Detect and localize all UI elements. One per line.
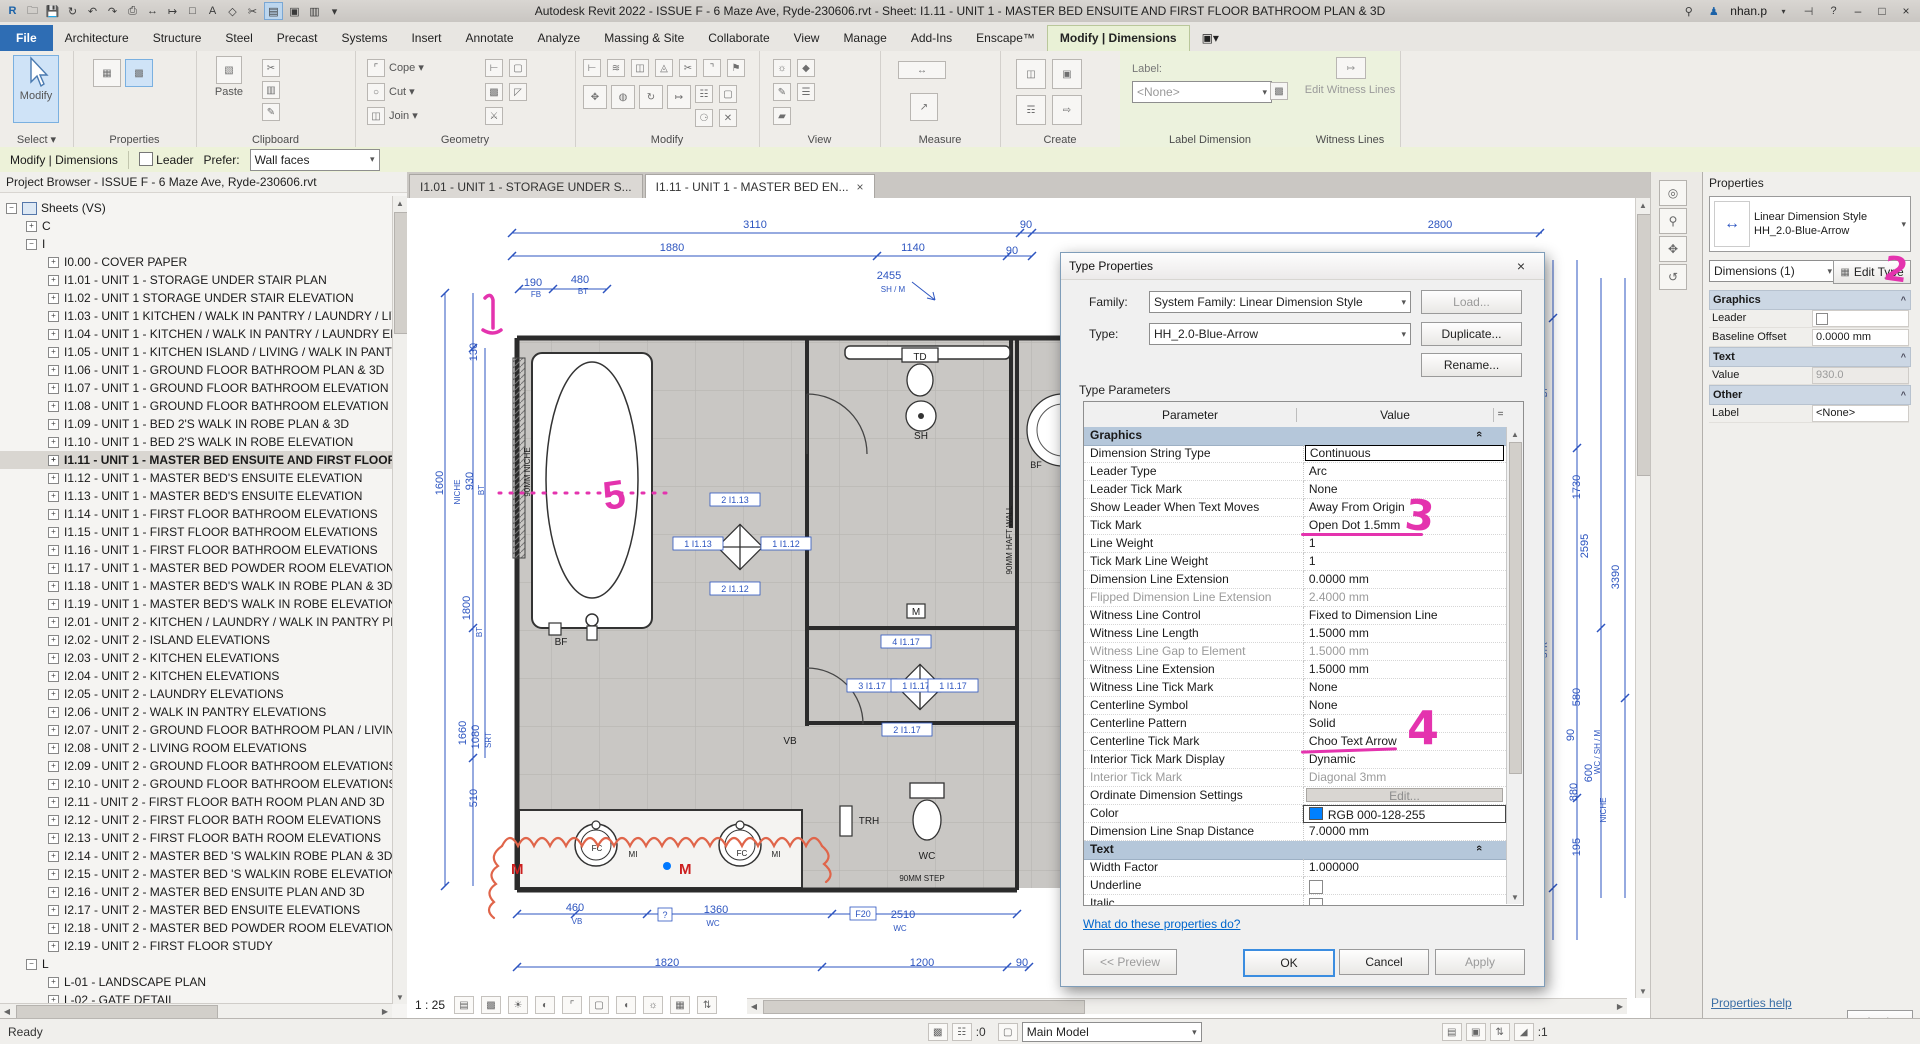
ribbon-tab-precast[interactable]: Precast [265, 26, 330, 51]
elevation-tag: 1 I1.12 [772, 539, 800, 549]
tree-item[interactable]: +I1.17 - UNIT 1 - MASTER BED POWDER ROOM… [0, 559, 408, 577]
ribbon-group-create: ◫ ▣ ☶ ⇨ Create [1000, 51, 1121, 147]
elevation-tag: F20 [855, 909, 871, 919]
ribbon-tab-view[interactable]: View [782, 26, 832, 51]
tree-item[interactable]: +I2.02 - UNIT 2 - ISLAND ELEVATIONS [0, 631, 408, 649]
parameter-row[interactable]: Witness Line ControlFixed to Dimension L… [1084, 607, 1506, 625]
status-text: Ready [8, 1025, 43, 1039]
label-dimension-group-label[interactable]: Label Dimension [1120, 134, 1300, 146]
ribbon-group-properties: ▦ ▩ Properties [73, 51, 197, 147]
ok-button[interactable]: OK [1243, 949, 1335, 977]
plan-label: WC [919, 851, 936, 862]
plan-label: M [912, 607, 920, 618]
dialog-title: Type Properties [1069, 259, 1153, 273]
tree-item[interactable]: +I2.10 - UNIT 2 - GROUND FLOOR BATHROOM … [0, 775, 408, 793]
edit-witness-lines-button[interactable]: Edit Witness Lines [1300, 83, 1400, 97]
options-bar: Modify | Dimensions Leader Prefer: Wall … [0, 147, 1920, 173]
press-drag-icon[interactable]: ⇅ [1490, 1023, 1510, 1041]
dimension-text: 130 [468, 343, 480, 361]
override-graphics-icon[interactable]: ✎ [773, 83, 791, 101]
plan-label: FC [737, 849, 748, 858]
tree-item[interactable]: +I0.00 - COVER PAPER [0, 253, 408, 271]
tree-item[interactable]: +I2.03 - UNIT 2 - KITCHEN ELEVATIONS [0, 649, 408, 667]
minimize-button[interactable]: – [1850, 4, 1866, 18]
geometry-group-label[interactable]: Geometry [355, 134, 575, 146]
modify-group-label[interactable]: Modify [575, 134, 759, 146]
dialog-title-bar[interactable]: Type Properties × [1061, 253, 1544, 280]
type-selector-line2: HH_2.0-Blue-Arrow [1754, 224, 1867, 238]
ribbon-tab-insert[interactable]: Insert [399, 26, 453, 51]
dimension-text: 1080 [470, 725, 482, 749]
family-select[interactable]: System Family: Linear Dimension Style▾ [1149, 291, 1411, 313]
clipboard-group-label[interactable]: Clipboard [196, 134, 355, 146]
tree-item[interactable]: +I2.01 - UNIT 2 - KITCHEN / LAUNDRY / WA… [0, 613, 408, 631]
copy-modify-icon[interactable]: ◍ [611, 85, 635, 109]
type-properties-dialog[interactable]: Type Properties × Family: System Family:… [1060, 252, 1545, 987]
restore-button[interactable]: □ [1874, 4, 1890, 18]
tree-item[interactable]: +I1.15 - UNIT 1 - FIRST FLOOR BATHROOM E… [0, 523, 408, 541]
create-group-icon[interactable]: ◫ [1016, 59, 1046, 89]
tree-item[interactable]: +I2.15 - UNIT 2 - MASTER BED 'S WALKIN R… [0, 865, 408, 883]
tree-item[interactable]: +I2.13 - UNIT 2 - FIRST FLOOR BATH ROOM … [0, 829, 408, 847]
ribbon-tab-structure[interactable]: Structure [141, 26, 214, 51]
pin-icon[interactable]: ⚑ [727, 59, 745, 77]
pan-icon[interactable]: ✥ [1659, 236, 1687, 262]
chevron-down-icon[interactable]: ▾ [1775, 3, 1792, 19]
3d-view-icon[interactable]: ◇ [224, 3, 241, 19]
view-group-label[interactable]: View [759, 134, 880, 146]
reveal-hidden-icon[interactable]: ☼ [643, 996, 663, 1014]
shadows-icon[interactable]: ◐ [535, 996, 555, 1014]
tree-item[interactable]: +I1.10 - UNIT 1 - BED 2'S WALK IN ROBE E… [0, 433, 408, 451]
dimension-text: 2595 [1579, 534, 1591, 558]
ribbon-tab-architecture[interactable]: Architecture [53, 26, 141, 51]
measure-line-icon[interactable]: ↔ [898, 61, 946, 79]
ribbon-tab-analyze[interactable]: Analyze [526, 26, 593, 51]
ribbon-display-toggle[interactable]: ▣▾ [1190, 26, 1231, 51]
edit-type-button[interactable]: ▦ Edit Type [1833, 260, 1911, 284]
parameter-row[interactable]: Interior Tick Mark DisplayDynamic [1084, 751, 1506, 769]
paint-icon[interactable]: ◸ [509, 83, 527, 101]
unpin-icon[interactable]: ⚆ [695, 109, 713, 127]
modify-tool-button[interactable]: Modify [13, 55, 59, 123]
label-dimension-select[interactable]: <None>▾ [1132, 81, 1272, 103]
type-select[interactable]: HH_2.0-Blue-Arrow▾ [1149, 323, 1411, 345]
revit-window: R 🗀 💾 ↻ ↶ ↷ ⎙ ↔ ↦ □ A ◇ ✂ ▤ ▣ ▥ ▾ Autode… [0, 0, 1920, 1044]
dimension-text: 195 [1571, 838, 1583, 856]
dialog-close-icon[interactable]: × [1506, 258, 1536, 274]
prefer-select[interactable]: Wall faces▾ [250, 149, 380, 171]
value-column-header[interactable]: Value [1297, 408, 1494, 422]
properties-group-label[interactable]: Properties [73, 134, 196, 146]
worksharing-display-icon[interactable]: ▦ [670, 996, 690, 1014]
parameter-row[interactable]: ColorRGB 000-128-255 [1084, 805, 1506, 823]
tree-item[interactable]: +I1.03 - UNIT 1 KITCHEN / WALK IN PANTRY… [0, 307, 408, 325]
beam-icon[interactable]: ▢ [509, 59, 527, 77]
dimension-text: NICHE [1599, 798, 1608, 823]
parameter-row[interactable]: Line Weight1 [1084, 535, 1506, 553]
cope-icon[interactable]: ⌜ [367, 59, 385, 77]
sun-path-icon[interactable]: ☀ [508, 996, 528, 1014]
dimension-text: 90 [1006, 245, 1018, 257]
ribbon-tab-file[interactable]: File [0, 25, 53, 51]
dimension-text: 580 [1571, 688, 1583, 706]
text-icon[interactable]: A [204, 3, 221, 19]
open-icon[interactable]: 🗀 [24, 3, 41, 19]
zoom-icon[interactable]: ⚲ [1659, 208, 1687, 234]
browser-horizontal-scrollbar[interactable]: ◀ ▶ [0, 1003, 392, 1018]
ribbon-tab-annotate[interactable]: Annotate [453, 26, 525, 51]
tree-item-selected[interactable]: +I1.11 - UNIT 1 - MASTER BED ENSUITE AND… [0, 451, 408, 469]
modify-cursor-icon [23, 56, 49, 90]
tree-item[interactable]: +I2.11 - UNIT 2 - FIRST FLOOR BATH ROOM … [0, 793, 408, 811]
tree-item[interactable]: +I2.12 - UNIT 2 - FIRST FLOOR BATH ROOM … [0, 811, 408, 829]
tree-item[interactable]: +I2.16 - UNIT 2 - MASTER BED ENSUITE PLA… [0, 883, 408, 901]
array-icon[interactable]: ☷ [695, 85, 713, 103]
view-cube-icon[interactable]: ▰ [773, 107, 791, 125]
parameter-row[interactable]: Witness Line Length1.5000 mm [1084, 625, 1506, 643]
tree-node-c[interactable]: +C [0, 217, 408, 235]
parameter-section-row[interactable]: Text« [1084, 841, 1506, 860]
hide-icon[interactable]: ◆ [797, 59, 815, 77]
dimension-text: 1140 [901, 242, 925, 254]
copy-icon[interactable]: ▥ [262, 81, 280, 99]
parameter-row[interactable]: Interior Tick MarkDiagonal 3mm [1084, 769, 1506, 787]
edit-label-icon[interactable]: ▩ [1270, 82, 1288, 100]
orbit-icon[interactable]: ↺ [1659, 264, 1687, 290]
dimension-text: 1660 [457, 721, 469, 745]
extend-icon[interactable]: ↦ [667, 85, 691, 109]
tree-item[interactable]: +I1.09 - UNIT 1 - BED 2'S WALK IN ROBE P… [0, 415, 408, 433]
mirror-icon[interactable]: ◫ [631, 59, 649, 77]
type-parameters-label: Type Parameters [1079, 383, 1170, 397]
tree-item[interactable]: +I1.18 - UNIT 1 - MASTER BED'S WALK IN R… [0, 577, 408, 595]
parameter-row[interactable]: Dimension String TypeContinuous [1084, 445, 1506, 463]
search-icon[interactable]: ⚲ [1680, 3, 1697, 19]
ribbon-group-label-dimension: Label: <None>▾ ▩ Label Dimension [1120, 51, 1301, 147]
active-workset-icon[interactable]: ☷ [952, 1023, 972, 1041]
cancel-button[interactable]: Cancel [1339, 949, 1429, 975]
parameter-row[interactable]: Italic [1084, 895, 1506, 905]
properties-section-row[interactable]: Text^ [1709, 347, 1911, 367]
view-tab-close-icon[interactable]: × [857, 180, 864, 194]
parameter-row[interactable]: Dimension Line Snap Distance7.0000 mm [1084, 823, 1506, 841]
create-group-label[interactable]: Create [1000, 134, 1120, 146]
parameter-row[interactable]: Centerline Tick MarkChoo Text Arrow [1084, 733, 1506, 751]
show-crop-icon[interactable]: ▢ [589, 996, 609, 1014]
parameter-row[interactable]: Tick MarkOpen Dot 1.5mm [1084, 517, 1506, 535]
elevation-tag: 1 I1.13 [684, 539, 712, 549]
status-bar: Ready ▩ ☷ :0 ▢ Main Model▾ ▤ ▣ ⇅ ◢ :1 [0, 1018, 1920, 1044]
filter-icon[interactable]: ◢ [1514, 1023, 1534, 1041]
revit-logo-icon[interactable]: R [4, 3, 21, 19]
view-control-bar: 1 : 25 ▤ ▩ ☀ ◐ ⌜ ▢ ◖ ☼ ▦ ⇅ [415, 996, 721, 1014]
join-geometry-icon[interactable]: ◫ [367, 107, 385, 125]
properties-row[interactable]: Baseline Offset0.0000 mm [1709, 328, 1909, 347]
checkbox[interactable] [1309, 880, 1323, 894]
undo-icon[interactable]: ↶ [84, 3, 101, 19]
thin-lines-icon[interactable]: ▤ [264, 2, 283, 20]
view-tab-bar: I1.01 - UNIT 1 - STORAGE UNDER S...I1.11… [407, 172, 1650, 198]
type-selector-line1: Linear Dimension Style [1754, 210, 1867, 224]
project-browser-title[interactable]: Project Browser - ISSUE F - 6 Maze Ave, … [0, 172, 407, 193]
lightbulb-icon[interactable]: ☼ [773, 59, 791, 77]
tree-item[interactable]: +I2.19 - UNIT 2 - FIRST FLOOR STUDY [0, 937, 408, 955]
demolish-icon[interactable]: ⚔ [485, 107, 503, 125]
ribbon-group-clipboard: ▧ Paste ✂ ▥ ✎ Clipboard [196, 51, 356, 147]
tree-item[interactable]: +I1.12 - UNIT 1 - MASTER BED'S ENSUITE E… [0, 469, 408, 487]
tree-item[interactable]: +I1.16 - UNIT 1 - FIRST FLOOR BATHROOM E… [0, 541, 408, 559]
workset-counter: :0 [976, 1025, 986, 1039]
save-icon[interactable]: 💾 [44, 3, 61, 19]
prefer-label: Prefer: [204, 153, 240, 167]
parameter-row[interactable]: Flipped Dimension Line Extension2.4000 m… [1084, 589, 1506, 607]
parameter-column-header[interactable]: Parameter [1084, 408, 1297, 422]
tree-item[interactable]: +I2.09 - UNIT 2 - GROUND FLOOR BATHROOM … [0, 757, 408, 775]
dimension-text: FB [531, 290, 541, 299]
dimension-text: 90 [1020, 219, 1032, 231]
parameter-row[interactable]: Ordinate Dimension SettingsEdit... [1084, 787, 1506, 805]
leader-checkbox[interactable] [139, 152, 153, 166]
visual-style-icon[interactable]: ▩ [481, 996, 501, 1014]
dimension-text: 1800 [461, 596, 473, 620]
move-icon[interactable]: ✥ [583, 85, 607, 109]
dimension-text: 3390 [1610, 565, 1622, 589]
view-tab-active[interactable]: I1.11 - UNIT 1 - MASTER BED EN...× [645, 174, 875, 198]
scale-icon[interactable]: ▢ [719, 85, 737, 103]
tree-item[interactable]: +I2.05 - UNIT 2 - LAUNDRY ELEVATIONS [0, 685, 408, 703]
elevation-tag: 3 I1.17 [858, 681, 886, 691]
parameter-section-row[interactable]: Graphics« [1084, 427, 1506, 446]
mirror-draw-icon[interactable]: ◬ [655, 59, 673, 77]
dimension-text: 2800 [1428, 219, 1452, 231]
tree-item[interactable]: +L-01 - LANDSCAPE PLAN [0, 973, 408, 991]
rotate-icon[interactable]: ↻ [639, 85, 663, 109]
properties-section-row[interactable]: Graphics^ [1709, 290, 1911, 310]
dialog-apply-button[interactable]: Apply [1435, 949, 1525, 975]
dimension-text: 930 [464, 472, 476, 490]
properties-row[interactable]: Leader [1709, 309, 1909, 328]
tree-item[interactable]: +I1.05 - UNIT 1 - KITCHEN ISLAND / LIVIN… [0, 343, 408, 361]
parameter-row[interactable]: Witness Line Extension1.5000 mm [1084, 661, 1506, 679]
plan-label: BF [555, 637, 568, 648]
linework-icon[interactable]: ☰ [797, 83, 815, 101]
parameter-row[interactable]: Width Factor1.000000 [1084, 859, 1506, 877]
properties-section-row[interactable]: Other^ [1709, 385, 1911, 405]
tree-item[interactable]: +I1.02 - UNIT 1 STORAGE UNDER STAIR ELEV… [0, 289, 408, 307]
properties-row[interactable]: Label<None> [1709, 404, 1909, 423]
tree-item[interactable]: +I2.07 - UNIT 2 - GROUND FLOOR BATHROOM … [0, 721, 408, 739]
temporary-hide-isolate-icon[interactable]: ◖ [616, 996, 636, 1014]
tree-node-l[interactable]: −L [0, 955, 408, 973]
ribbon-tab-enscape-[interactable]: Enscape™ [964, 26, 1047, 51]
ribbon-tab-massing-site[interactable]: Massing & Site [592, 26, 696, 51]
create-assembly-icon[interactable]: ▣ [1052, 59, 1082, 89]
ribbon-tab-collaborate[interactable]: Collaborate [696, 26, 781, 51]
switch-windows-icon[interactable]: ▥ [306, 3, 323, 19]
customize-qat-icon[interactable]: ▾ [326, 3, 343, 19]
properties-header[interactable]: Properties [1703, 172, 1920, 194]
constraints-icon[interactable]: ⇅ [697, 996, 717, 1014]
split-face-icon[interactable]: ▩ [485, 83, 503, 101]
signed-in-user[interactable]: nhan.p [1730, 4, 1767, 18]
design-option-select[interactable]: Main Model▾ [1022, 1022, 1202, 1042]
filter-select[interactable]: Dimensions (1)▾ [1709, 260, 1837, 282]
plan-label: 90MM HAFT WALL [1005, 505, 1014, 574]
canvas-vertical-scrollbar[interactable]: ▲ ▼ [1635, 198, 1650, 998]
plan-label: SH [914, 431, 928, 442]
type-selector-chevron-icon[interactable]: ▾ [1901, 219, 1906, 230]
dimension-text: 460 [566, 902, 584, 914]
detail-level-icon[interactable]: ▤ [454, 996, 474, 1014]
label-dimension-label: Label: [1132, 63, 1162, 75]
tree-item[interactable]: +I1.08 - UNIT 1 - GROUND FLOOR BATHROOM … [0, 397, 408, 415]
tree-item[interactable]: +I1.04 - UNIT 1 - KITCHEN / WALK IN PANT… [0, 325, 408, 343]
checkbox[interactable] [1309, 898, 1323, 905]
worksets-icon[interactable]: ▩ [928, 1023, 948, 1041]
close-button[interactable]: × [1898, 4, 1914, 18]
tree-item[interactable]: +I1.19 - UNIT 1 - MASTER BED'S WALK IN R… [0, 595, 408, 613]
tree-item[interactable]: +I2.08 - UNIT 2 - LIVING ROOM ELEVATIONS [0, 739, 408, 757]
tree-node-i[interactable]: −I [0, 235, 408, 253]
measure-icon[interactable]: ↔ [144, 3, 161, 19]
tree-item[interactable]: +I2.14 - UNIT 2 - MASTER BED 'S WALKIN R… [0, 847, 408, 865]
close-hidden-icon[interactable]: ▣ [286, 3, 303, 19]
trim-icon[interactable]: ⌝ [703, 59, 721, 77]
tree-item[interactable]: +I1.07 - UNIT 1 - GROUND FLOOR BATHROOM … [0, 379, 408, 397]
leader-checkbox-label: Leader [156, 153, 193, 167]
parameter-row[interactable]: Underline [1084, 877, 1506, 895]
cart-icon[interactable]: ⊣ [1800, 3, 1817, 19]
type-parameters-table[interactable]: Parameter Value = Graphics«Dimension Str… [1083, 401, 1524, 906]
cut-icon[interactable]: ✂ [262, 59, 280, 77]
design-options-icon[interactable]: ▢ [998, 1023, 1018, 1041]
view-tab[interactable]: I1.01 - UNIT 1 - STORAGE UNDER S... [409, 174, 643, 198]
create-parts-icon[interactable]: ☶ [1016, 95, 1046, 125]
dimension-text: VB [572, 917, 583, 926]
section-icon[interactable]: ✂ [244, 3, 261, 19]
help-icon[interactable]: ? [1825, 3, 1842, 19]
duplicate-button[interactable]: Duplicate... [1421, 322, 1522, 346]
tree-item[interactable]: +I2.18 - UNIT 2 - MASTER BED POWDER ROOM… [0, 919, 408, 937]
paste-button[interactable]: ▧ Paste [206, 55, 252, 123]
witness-lines-group-label[interactable]: Witness Lines [1300, 134, 1400, 146]
plan-label: TD [913, 352, 926, 363]
offset-icon[interactable]: ≋ [607, 59, 625, 77]
parameter-row[interactable]: Witness Line Tick MarkNone [1084, 679, 1506, 697]
user-icon: ♟ [1705, 3, 1722, 19]
aligned-dimension-icon[interactable]: ↦ [164, 3, 181, 19]
canvas-horizontal-scrollbar[interactable]: ◀ ▶ [747, 998, 1627, 1014]
crop-view-icon[interactable]: ⌜ [562, 996, 582, 1014]
elevation-tag: 2 I1.12 [721, 584, 749, 594]
view-scale[interactable]: 1 : 25 [415, 998, 445, 1012]
delete-icon[interactable]: ✕ [719, 109, 737, 127]
align-icon[interactable]: ⊢ [583, 59, 601, 77]
cut-tool[interactable]: Cut ▾ [389, 85, 415, 98]
load-button[interactable]: Load... [1421, 290, 1522, 314]
ribbon-tab-add-ins[interactable]: Add-Ins [899, 26, 964, 51]
match-properties-icon[interactable]: ✎ [262, 103, 280, 121]
tree-root-sheets[interactable]: −Sheets (VS) [0, 199, 402, 217]
parameter-row[interactable]: Show Leader When Text MovesAway From Ori… [1084, 499, 1506, 517]
redo-icon[interactable]: ↷ [104, 3, 121, 19]
table-scrollbar[interactable]: ▲ ▼ [1506, 427, 1523, 904]
tree-item[interactable]: +I2.17 - UNIT 2 - MASTER BED ENSUITE ELE… [0, 901, 408, 919]
create-similar-icon[interactable]: ⇨ [1052, 95, 1082, 125]
ribbon-group-measure: ↔ ↗ Measure [880, 51, 1001, 147]
parameter-row[interactable]: Tick Mark Line Weight1 [1084, 553, 1506, 571]
dialog-help-link[interactable]: What do these properties do? [1083, 917, 1240, 931]
parameter-row[interactable]: Dimension Line Extension0.0000 mm [1084, 571, 1506, 589]
tree-item[interactable]: +I2.06 - UNIT 2 - WALK IN PANTRY ELEVATI… [0, 703, 408, 721]
parameter-row[interactable]: Centerline PatternSolid [1084, 715, 1506, 733]
tag-icon[interactable]: □ [184, 3, 201, 19]
ribbon-tab-manage[interactable]: Manage [831, 26, 898, 51]
wall-joins-icon[interactable]: ⊢ [485, 59, 503, 77]
ribbon-group-geometry: Cope ▾ Cut ▾ Join ▾ ⌜ ○ ◫ ⊢ ▢ ▩ ◸ ⚔ Geom… [355, 51, 576, 147]
modify-tool-label: Modify [20, 90, 52, 102]
parameter-row[interactable]: Witness Line Gap to Element1.5000 mm [1084, 643, 1506, 661]
dimension-text: 190 [524, 277, 542, 289]
plan-label: MI [629, 850, 638, 859]
properties-row[interactable]: Value930.0 [1709, 366, 1909, 385]
browser-vertical-scrollbar[interactable]: ▲ ▼ [392, 196, 408, 1004]
tree-item[interactable]: +I2.04 - UNIT 2 - KITCHEN ELEVATIONS [0, 667, 408, 685]
exclude-options-icon[interactable]: ▣ [1466, 1023, 1486, 1041]
cut-geometry-icon[interactable]: ○ [367, 83, 385, 101]
properties-help-link[interactable]: Properties help [1711, 996, 1792, 1010]
rename-button[interactable]: Rename... [1421, 353, 1522, 377]
project-browser: Project Browser - ISSUE F - 6 Maze Ave, … [0, 172, 408, 1018]
tree-item[interactable]: +I1.14 - UNIT 1 - FIRST FLOOR BATHROOM E… [0, 505, 408, 523]
svg-text:M: M [679, 861, 692, 878]
type-properties-icon[interactable]: ▦ [93, 59, 121, 87]
quick-access-toolbar: R 🗀 💾 ↻ ↶ ↷ ⎙ ↔ ↦ □ A ◇ ✂ ▤ ▣ ▥ ▾ [0, 2, 343, 20]
join-tool[interactable]: Join ▾ [389, 109, 418, 122]
tree-item[interactable]: +I1.06 - UNIT 1 - GROUND FLOOR BATHROOM … [0, 361, 408, 379]
print-icon[interactable]: ⎙ [124, 3, 141, 19]
preview-button[interactable]: << Preview [1083, 949, 1177, 975]
editable-only-icon[interactable]: ▤ [1442, 1023, 1462, 1041]
ribbon-tab-systems[interactable]: Systems [329, 26, 399, 51]
split-icon[interactable]: ✂ [679, 59, 697, 77]
select-group-label[interactable]: Select ▾ [0, 133, 73, 146]
measure-group-label[interactable]: Measure [880, 134, 1000, 146]
dimension-text: NICHE [453, 480, 462, 505]
ribbon-tab-modify-dimensions[interactable]: Modify | Dimensions [1047, 25, 1190, 51]
type-selector[interactable]: ↔ Linear Dimension Style HH_2.0-Blue-Arr… [1709, 196, 1911, 252]
tree-item[interactable]: +I1.13 - UNIT 1 - MASTER BED'S ENSUITE E… [0, 487, 408, 505]
parameter-row[interactable]: Leader Tick MarkNone [1084, 481, 1506, 499]
dimension-icon[interactable]: ↗ [910, 93, 938, 121]
sync-icon[interactable]: ↻ [64, 3, 81, 19]
context-label: Modify | Dimensions [10, 153, 118, 167]
dimension-text: WC [706, 919, 720, 928]
parameter-row[interactable]: Leader TypeArc [1084, 463, 1506, 481]
cope-tool[interactable]: Cope ▾ [389, 61, 424, 74]
navigation-wheel-icon[interactable]: ◎ [1659, 180, 1687, 206]
properties-palette-icon[interactable]: ▩ [125, 59, 153, 87]
dimension-text: 2510 [891, 909, 915, 921]
tree-item[interactable]: +I1.01 - UNIT 1 - STORAGE UNDER STAIR PL… [0, 271, 408, 289]
ordinate-edit-button[interactable]: Edit... [1306, 788, 1503, 802]
dimension-text: BT [475, 627, 484, 637]
dimension-text: BT [578, 287, 588, 296]
dimension-text: 510 [468, 789, 480, 807]
parameter-row[interactable]: Centerline SymbolNone [1084, 697, 1506, 715]
ribbon-tab-steel[interactable]: Steel [213, 26, 264, 51]
